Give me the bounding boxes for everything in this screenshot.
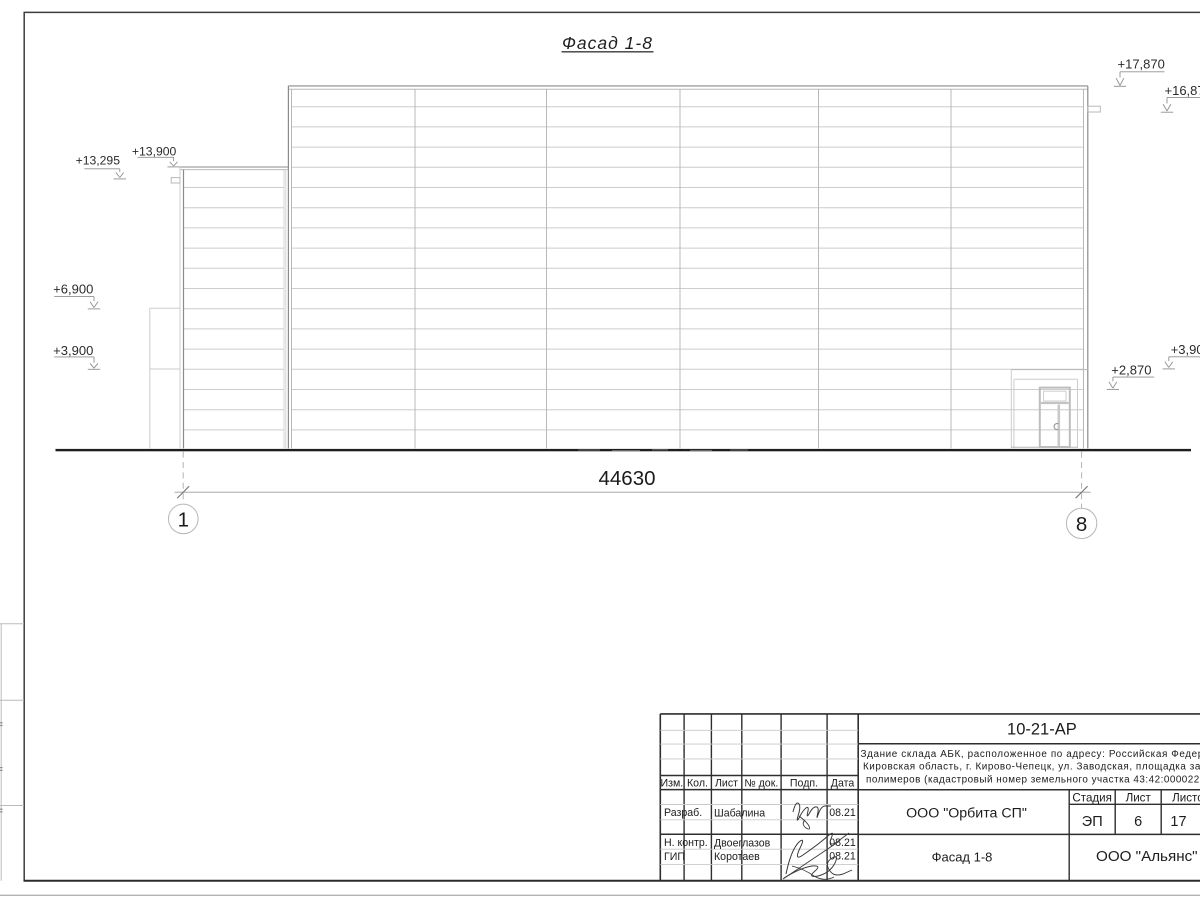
svg-text:Дата: Дата <box>831 777 855 789</box>
svg-text:Здание склада АБК, расположенн: Здание склада АБК, расположенное по адре… <box>861 749 1200 760</box>
svg-text:Фасад 1-8: Фасад 1-8 <box>562 33 653 53</box>
svg-text:Шабалина: Шабалина <box>714 808 765 820</box>
svg-text:Двоеглазов: Двоеглазов <box>714 838 771 850</box>
svg-text:Н. контр.: Н. контр. <box>664 837 708 849</box>
svg-text:+3,900: +3,900 <box>1171 342 1200 357</box>
svg-text:Кировская область, г. Кирово-Ч: Кировская область, г. Кирово-Чепецк, ул.… <box>863 762 1200 773</box>
svg-text:+6,900: +6,900 <box>53 281 93 296</box>
svg-text:№ док.: № док. <box>744 777 778 789</box>
svg-text:44630: 44630 <box>598 467 655 490</box>
svg-text:1: 1 <box>178 508 189 531</box>
svg-text:6: 6 <box>1134 814 1142 830</box>
svg-text:ГИП: ГИП <box>664 851 685 863</box>
svg-text:Разраб.: Разраб. <box>664 807 702 819</box>
svg-text:8: 8 <box>1076 513 1087 536</box>
svg-text:Лист: Лист <box>715 777 738 789</box>
svg-text:+13,295: +13,295 <box>76 153 121 167</box>
svg-text:Фасад 1-8: Фасад 1-8 <box>932 850 993 865</box>
svg-text:+2,870: +2,870 <box>1111 362 1151 377</box>
svg-text:08.21: 08.21 <box>829 807 856 819</box>
svg-text:Подп.: Подп. <box>790 777 818 789</box>
svg-text:10-21-АР: 10-21-АР <box>1007 721 1077 739</box>
svg-text:ООО "Альянс": ООО "Альянс" <box>1096 848 1198 865</box>
svg-text:+3,900: +3,900 <box>53 343 93 358</box>
svg-text:17: 17 <box>1170 814 1186 830</box>
svg-text:Стадия: Стадия <box>1072 792 1112 805</box>
svg-text:+17,870: +17,870 <box>1118 57 1165 72</box>
svg-text:Изм.: Изм. <box>661 777 684 789</box>
svg-text:+16,870: +16,870 <box>1165 83 1200 98</box>
svg-text:08.21: 08.21 <box>829 851 856 863</box>
svg-text:Лист: Лист <box>1126 792 1152 805</box>
svg-text:+13,900: +13,900 <box>132 144 177 158</box>
svg-text:ООО "Орбита СП": ООО "Орбита СП" <box>906 806 1027 822</box>
svg-text:08.21: 08.21 <box>829 837 856 849</box>
svg-text:Кол.: Кол. <box>687 777 708 789</box>
svg-text:ЭП: ЭП <box>1082 814 1103 830</box>
svg-text:Листов: Листов <box>1172 792 1200 805</box>
svg-text:Коротаев: Коротаев <box>714 851 760 863</box>
svg-text:полимеров (кадастровый номер з: полимеров (кадастровый номер земельного … <box>866 775 1200 786</box>
